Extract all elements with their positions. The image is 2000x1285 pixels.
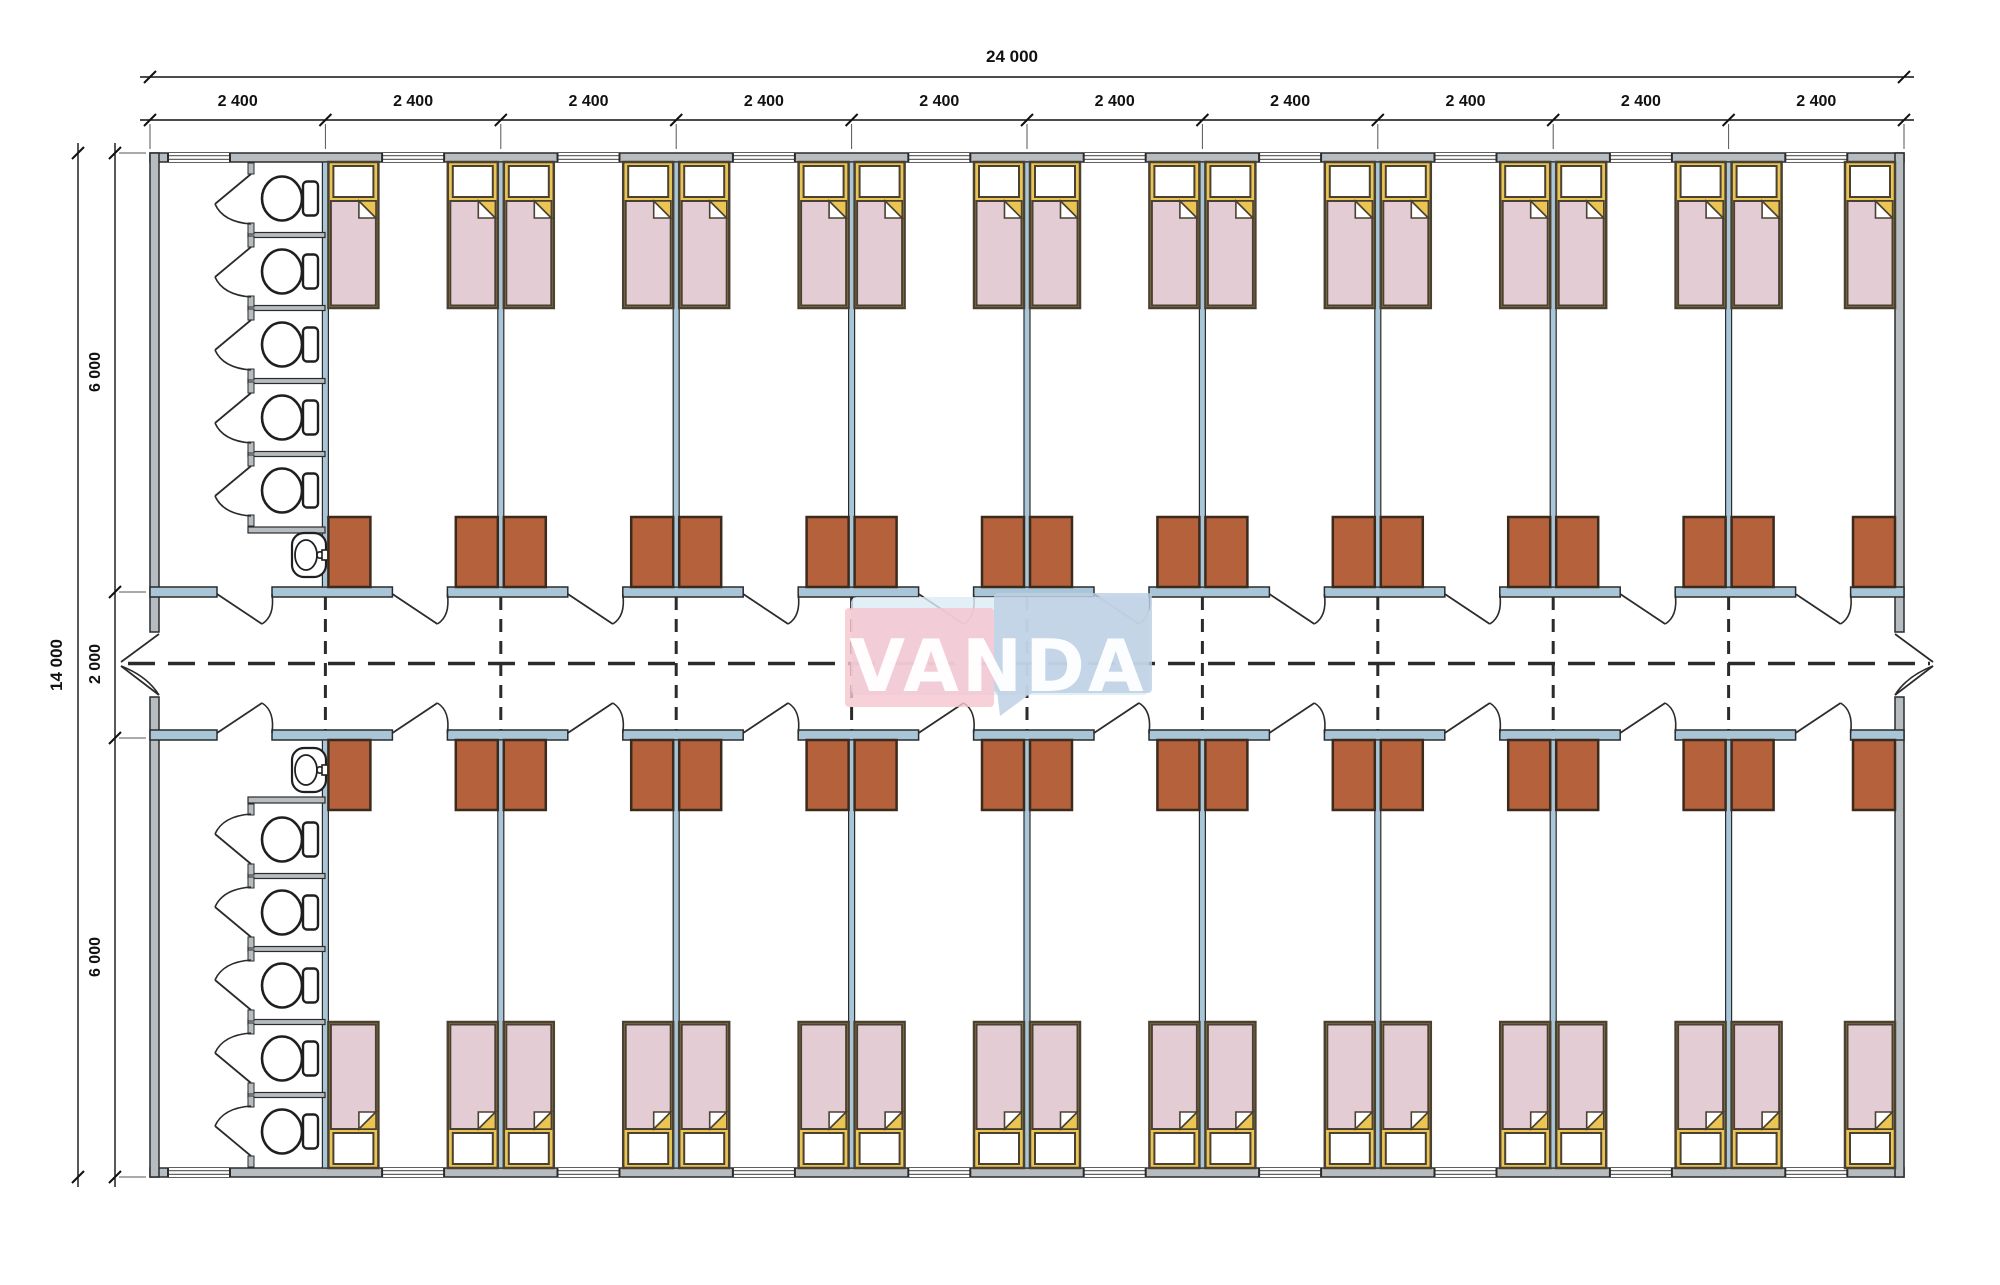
desk — [1030, 740, 1072, 810]
toilet-icon — [262, 469, 318, 513]
dimension-label: 2 400 — [1095, 93, 1135, 110]
bed — [448, 1022, 498, 1168]
bed — [1845, 162, 1895, 308]
bed — [504, 162, 554, 308]
floor-plan-drawing: 24 0002 4002 4002 4002 4002 4002 4002 40… — [0, 0, 2000, 1285]
desk — [855, 740, 897, 810]
window — [908, 153, 970, 162]
dimension-label: 2 400 — [1621, 93, 1661, 110]
bed — [1325, 162, 1375, 308]
desk — [855, 517, 897, 587]
desk — [328, 740, 370, 810]
bed — [1381, 1022, 1431, 1168]
window — [1259, 153, 1321, 162]
bed — [799, 1022, 849, 1168]
desk — [1556, 740, 1598, 810]
window — [1435, 1168, 1497, 1177]
vanda-watermark: VANDA — [845, 593, 1152, 716]
desk — [456, 517, 498, 587]
door-swing — [1269, 703, 1325, 733]
bed — [799, 162, 849, 308]
desk — [504, 517, 546, 587]
bed — [679, 162, 729, 308]
bed — [1381, 162, 1431, 308]
bed — [1732, 1022, 1782, 1168]
dimension-label: 2 000 — [87, 644, 104, 684]
sink-icon — [292, 748, 328, 792]
window — [1785, 1168, 1847, 1177]
desk — [1508, 517, 1550, 587]
toilet-stalls-top — [215, 163, 325, 533]
dimension-label: 2 400 — [568, 93, 608, 110]
bed — [1030, 1022, 1080, 1168]
desk — [328, 517, 370, 587]
bed — [855, 162, 905, 308]
desk — [982, 517, 1024, 587]
bed — [1500, 1022, 1550, 1168]
bed — [1325, 1022, 1375, 1168]
toilet-icon — [262, 1110, 318, 1154]
desk — [1556, 517, 1598, 587]
door-swing — [1445, 594, 1501, 624]
bed — [328, 1022, 378, 1168]
desk — [1030, 517, 1072, 587]
dimension-label: 2 400 — [218, 93, 258, 110]
bed — [1676, 162, 1726, 308]
desk — [807, 740, 849, 810]
toilet-icon — [262, 1037, 318, 1081]
dimension-label: 2 400 — [744, 93, 784, 110]
window — [908, 1168, 970, 1177]
bed — [1149, 162, 1199, 308]
desk — [1333, 740, 1375, 810]
bed — [1676, 1022, 1726, 1168]
door-swing — [568, 703, 624, 733]
door-swing — [743, 594, 799, 624]
toilet-icon — [262, 323, 318, 367]
desk — [1684, 740, 1726, 810]
window — [1610, 153, 1672, 162]
dimension-label: 2 400 — [393, 93, 433, 110]
desk — [1684, 517, 1726, 587]
desk — [1205, 740, 1247, 810]
bed — [504, 1022, 554, 1168]
toilet-icon — [262, 177, 318, 221]
bed — [855, 1022, 905, 1168]
window — [733, 153, 795, 162]
desk — [1205, 517, 1247, 587]
window — [1610, 1168, 1672, 1177]
door-swing — [392, 703, 448, 733]
dimension-label: 2 400 — [1796, 93, 1836, 110]
desk — [679, 517, 721, 587]
door-swing — [1620, 594, 1676, 624]
bed — [1732, 162, 1782, 308]
bed — [1500, 162, 1550, 308]
desk — [1157, 517, 1199, 587]
door-swing — [392, 594, 448, 624]
door-swing — [217, 703, 273, 733]
desk — [1381, 517, 1423, 587]
bed — [1205, 1022, 1255, 1168]
desk — [456, 740, 498, 810]
bed — [623, 162, 673, 308]
desk — [1381, 740, 1423, 810]
dimension-label: 2 400 — [1445, 93, 1485, 110]
door-swing — [1796, 703, 1852, 733]
toilet-icon — [262, 396, 318, 440]
desk — [1333, 517, 1375, 587]
bed — [623, 1022, 673, 1168]
door-swing — [1269, 594, 1325, 624]
desk — [1853, 740, 1895, 810]
window — [382, 1168, 444, 1177]
desk — [504, 740, 546, 810]
toilet-icon — [262, 891, 318, 935]
toilet-icon — [262, 964, 318, 1008]
window — [168, 1168, 230, 1177]
window — [1785, 153, 1847, 162]
bed — [1845, 1022, 1895, 1168]
bed — [1556, 162, 1606, 308]
window — [733, 1168, 795, 1177]
door-swing — [1796, 594, 1852, 624]
desk — [982, 740, 1024, 810]
bed — [328, 162, 378, 308]
window — [1084, 1168, 1146, 1177]
dimension-label: 6 000 — [87, 937, 104, 977]
desk — [1157, 740, 1199, 810]
desk — [1853, 517, 1895, 587]
desk — [1732, 740, 1774, 810]
bed — [1149, 1022, 1199, 1168]
door-swing — [743, 703, 799, 733]
desk — [631, 740, 673, 810]
desk — [631, 517, 673, 587]
window — [382, 153, 444, 162]
bed — [1030, 162, 1080, 308]
window — [1259, 1168, 1321, 1177]
toilet-stalls-bottom — [215, 797, 325, 1167]
dimension-label: 24 000 — [986, 47, 1038, 66]
door-swing — [217, 594, 273, 624]
watermark-text: VANDA — [849, 624, 1146, 708]
corridor-wall-bottom — [150, 730, 1904, 740]
bed — [679, 1022, 729, 1168]
window — [558, 1168, 620, 1177]
window — [168, 153, 230, 162]
toilet-icon — [262, 818, 318, 862]
desk — [679, 740, 721, 810]
desk — [1732, 517, 1774, 587]
bed — [974, 162, 1024, 308]
dimension-label: 2 400 — [919, 93, 959, 110]
desk — [807, 517, 849, 587]
sink-icon — [292, 533, 328, 577]
bed — [1205, 162, 1255, 308]
floor-plan: 24 0002 4002 4002 4002 4002 4002 4002 40… — [0, 0, 2000, 1285]
toilet-icon — [262, 250, 318, 294]
window — [558, 153, 620, 162]
dimension-label: 6 000 — [87, 352, 104, 392]
window — [1084, 153, 1146, 162]
dimension-label: 2 400 — [1270, 93, 1310, 110]
door-swing — [1445, 703, 1501, 733]
door-swing — [1620, 703, 1676, 733]
dimension-label: 14 000 — [47, 639, 66, 691]
door-swing — [568, 594, 624, 624]
window — [1435, 153, 1497, 162]
desk — [1508, 740, 1550, 810]
bed — [448, 162, 498, 308]
bed — [974, 1022, 1024, 1168]
bed — [1556, 1022, 1606, 1168]
